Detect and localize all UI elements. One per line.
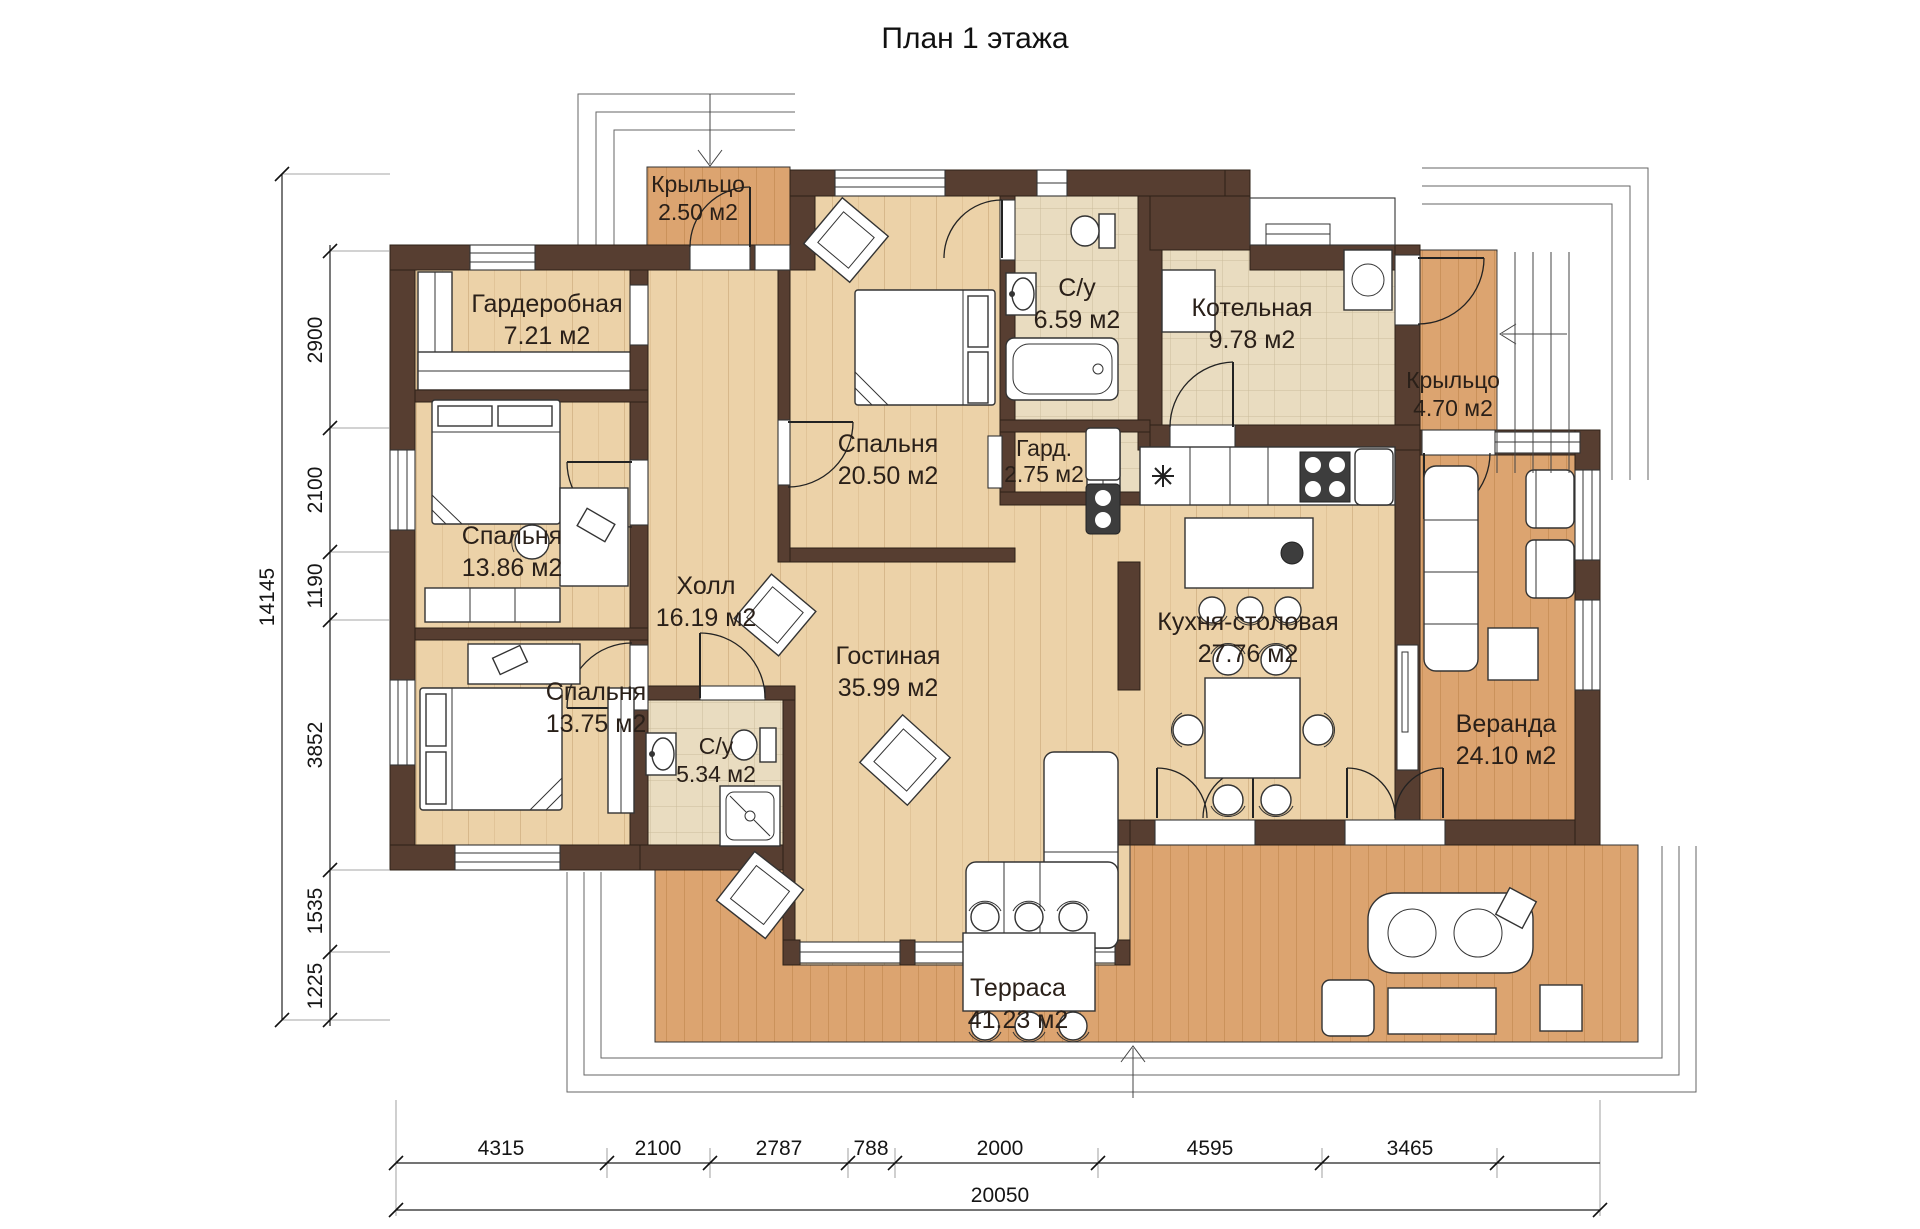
label-living: Гостиная (836, 642, 941, 670)
label-closet-area: 2.75 м2 (1004, 461, 1084, 487)
label-bedroom-top-area: 20.50 м2 (838, 462, 939, 490)
label-porch-right: Крыльцо (1406, 367, 1500, 393)
label-bedroom-bottom: Спальня (546, 678, 646, 706)
window (455, 845, 560, 870)
coffee-table (1488, 628, 1538, 680)
dresser (425, 588, 560, 622)
dim-left-0: 2900 (304, 317, 327, 364)
veranda-sofa (1424, 466, 1478, 671)
shower (720, 786, 780, 846)
label-bedroom-top: Спальня (838, 430, 938, 458)
dim-left-4: 1535 (304, 888, 327, 935)
window (1575, 600, 1600, 690)
dim-bottom-4: 2000 (977, 1137, 1024, 1160)
dim-left-3: 3852 (304, 722, 327, 769)
bed (855, 290, 995, 405)
label-boiler-area: 9.78 м2 (1209, 326, 1296, 354)
label-terrace: Терраса (970, 974, 1066, 1002)
window (470, 245, 535, 270)
label-closet: Гард. (1016, 435, 1072, 461)
dim-left-total: 14145 (256, 568, 279, 626)
faucet-icon (1152, 465, 1174, 487)
dim-bottom-3: 788 (853, 1137, 888, 1160)
sink (646, 733, 676, 775)
label-porch-right-area: 4.70 м2 (1413, 395, 1493, 421)
label-bedroom-mid-area: 13.86 м2 (462, 554, 563, 582)
window (1037, 170, 1067, 196)
boiler-unit (1344, 250, 1392, 310)
label-veranda: Веранда (1456, 710, 1557, 738)
label-bathroom-bottom-area: 5.34 м2 (676, 761, 756, 787)
window (1490, 432, 1580, 453)
label-kitchen: Кухня-столовая (1157, 608, 1338, 636)
dim-bottom-5: 4595 (1187, 1137, 1234, 1160)
dim-bottom-2: 2787 (756, 1137, 803, 1160)
stove-icon (1300, 452, 1350, 502)
kitchen-counter (1140, 447, 1395, 505)
dim-bottom-0: 4315 (478, 1137, 525, 1160)
label-boiler: Котельная (1191, 294, 1312, 322)
bed (420, 688, 562, 810)
window (1575, 470, 1600, 560)
label-wardrobe-area: 7.21 м2 (504, 322, 591, 350)
dim-bottom-6: 3465 (1387, 1137, 1434, 1160)
label-veranda-area: 24.10 м2 (1456, 742, 1557, 770)
bathtub (1006, 338, 1118, 400)
toilet (1071, 214, 1115, 248)
dim-bottom-1: 2100 (635, 1137, 682, 1160)
label-porch-top-area: 2.50 м2 (658, 199, 738, 225)
page-title: План 1 этажа (881, 22, 1068, 55)
label-terrace-area: 41.23 м2 (968, 1006, 1069, 1034)
dim-bottom-total: 20050 (971, 1184, 1029, 1207)
label-bedroom-mid: Спальня (462, 522, 562, 550)
dimension-chain-left: 2900 2100 1190 3852 1535 1225 14145 (256, 167, 390, 1027)
dim-left-5: 1225 (304, 963, 327, 1010)
floor-plan-page: 2900 2100 1190 3852 1535 1225 14145 4315… (0, 0, 1920, 1229)
sliding-door (1397, 645, 1418, 770)
window (390, 680, 415, 765)
boiler-niche (1250, 198, 1395, 245)
label-living-area: 35.99 м2 (838, 674, 939, 702)
armchair (1526, 470, 1574, 528)
dim-left-1: 2100 (304, 467, 327, 514)
glass-wall-pane (800, 942, 900, 963)
sink (1006, 273, 1036, 315)
label-bathroom-top: С/у (1058, 274, 1096, 302)
window (835, 170, 945, 196)
label-hall: Холл (677, 572, 736, 600)
label-wardrobe: Гардеробная (471, 290, 622, 318)
window (390, 450, 415, 530)
door-sidelight (755, 245, 790, 270)
floor-plan-svg: 2900 2100 1190 3852 1535 1225 14145 4315… (0, 0, 1920, 1229)
armchair (1526, 540, 1574, 598)
label-bathroom-top-area: 6.59 м2 (1034, 306, 1121, 334)
wardrobe-cabinet (608, 688, 634, 813)
label-hall-area: 16.19 м2 (656, 604, 757, 632)
label-bathroom-bottom: С/у (699, 733, 734, 759)
label-bedroom-bottom-area: 13.75 м2 (546, 710, 647, 738)
label-porch-top: Крыльцо (651, 171, 745, 197)
fridge (1355, 449, 1393, 505)
dim-left-2: 1190 (304, 563, 327, 608)
closet-door (988, 436, 1002, 488)
label-kitchen-area: 27.76 м2 (1198, 640, 1299, 668)
bed (432, 400, 560, 524)
dimension-chain-bottom: 4315 2100 2787 788 2000 4595 3465 20050 (389, 1100, 1607, 1217)
